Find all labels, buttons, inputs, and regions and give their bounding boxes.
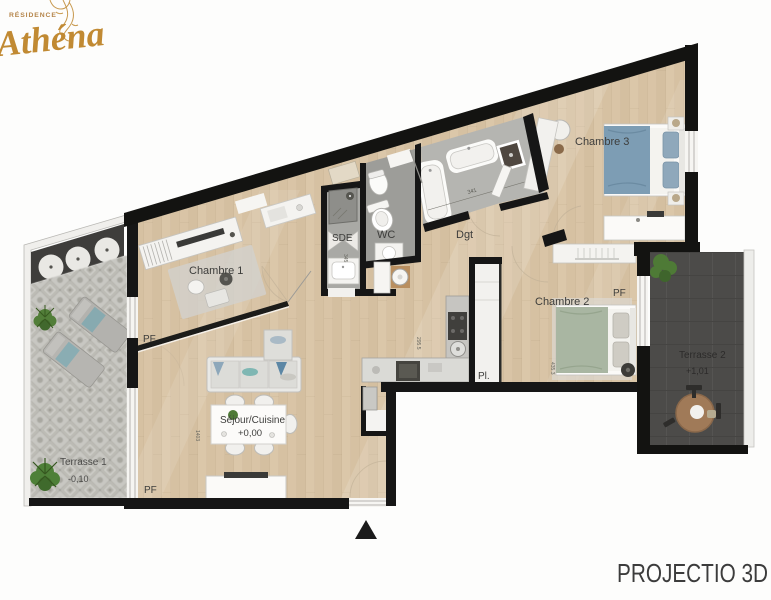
svg-text:435.3: 435.3	[549, 362, 555, 375]
svg-text:-0,10: -0,10	[68, 474, 89, 484]
svg-text:Terrasse 1: Terrasse 1	[60, 457, 107, 468]
svg-text:1403: 1403	[194, 430, 200, 441]
svg-text:Chambre 2: Chambre 2	[535, 296, 589, 308]
svg-text:WC: WC	[377, 229, 395, 241]
svg-text:PF: PF	[613, 288, 626, 299]
svg-text:PF: PF	[143, 334, 156, 345]
svg-text:PF: PF	[144, 485, 157, 496]
svg-text:Chambre 1: Chambre 1	[189, 265, 243, 277]
svg-text:345: 345	[342, 254, 348, 263]
svg-text:Chambre 3: Chambre 3	[575, 136, 629, 148]
svg-text:Séjour/Cuisine: Séjour/Cuisine	[220, 415, 285, 426]
svg-text:295.5: 295.5	[415, 337, 421, 350]
svg-text:Dgt: Dgt	[456, 229, 473, 241]
svg-text:+1,01: +1,01	[686, 366, 709, 376]
svg-text:SDE: SDE	[332, 233, 353, 244]
svg-text:Terrasse 2: Terrasse 2	[679, 350, 726, 361]
svg-text:PROJECTIO 3D: PROJECTIO 3D	[617, 558, 768, 588]
svg-text:+0,00: +0,00	[238, 428, 262, 439]
svg-text:Pl.: Pl.	[478, 371, 490, 382]
